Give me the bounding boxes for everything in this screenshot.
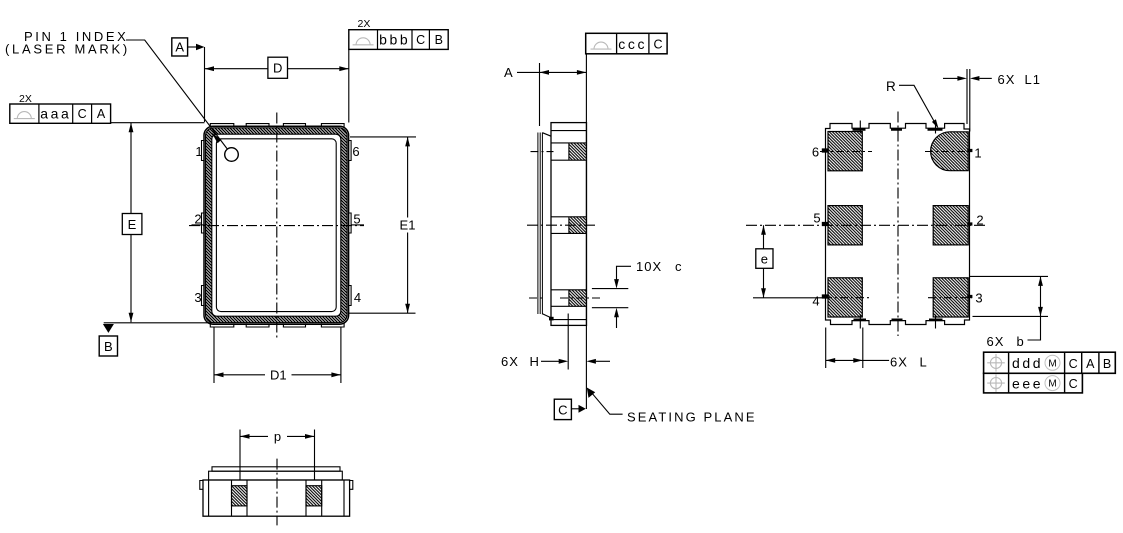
svg-text:C: C	[1069, 357, 1078, 371]
svg-text:bbb: bbb	[379, 32, 410, 48]
svg-text:6X: 6X	[998, 72, 1016, 87]
svg-text:6: 6	[812, 145, 819, 160]
svg-text:C: C	[653, 38, 662, 52]
svg-text:C: C	[558, 402, 567, 417]
svg-text:C: C	[1069, 377, 1078, 391]
svg-text:c: c	[675, 259, 682, 274]
svg-text:C: C	[416, 33, 425, 47]
svg-text:e: e	[761, 251, 768, 266]
svg-text:3: 3	[194, 290, 201, 305]
svg-text:E1: E1	[400, 218, 416, 233]
svg-text:3: 3	[975, 291, 982, 306]
svg-text:4: 4	[812, 294, 819, 309]
svg-text:6: 6	[352, 144, 359, 159]
svg-text:A: A	[97, 107, 106, 121]
svg-text:C: C	[78, 107, 87, 121]
svg-text:(LASER MARK): (LASER MARK)	[5, 42, 130, 57]
svg-text:B: B	[435, 33, 443, 47]
svg-text:ccc: ccc	[618, 36, 647, 52]
svg-text:B: B	[1103, 357, 1111, 371]
svg-text:10X: 10X	[636, 259, 662, 274]
svg-text:L1: L1	[1025, 72, 1041, 87]
svg-text:H: H	[530, 354, 539, 369]
svg-text:SEATING PLANE: SEATING PLANE	[627, 410, 757, 425]
svg-text:6X: 6X	[890, 354, 908, 369]
svg-text:6X: 6X	[987, 334, 1005, 349]
svg-text:eee: eee	[1012, 375, 1043, 391]
svg-text:4: 4	[354, 290, 361, 305]
svg-text:L: L	[920, 354, 927, 369]
svg-text:R: R	[886, 79, 896, 94]
svg-text:2X: 2X	[358, 18, 371, 30]
svg-text:2: 2	[976, 213, 983, 228]
svg-text:aaa: aaa	[40, 105, 71, 121]
svg-text:2X: 2X	[19, 93, 32, 105]
svg-text:6X: 6X	[501, 354, 519, 369]
svg-text:A: A	[175, 40, 184, 55]
svg-text:A: A	[1086, 357, 1095, 371]
svg-text:D1: D1	[270, 367, 287, 382]
svg-text:5: 5	[813, 211, 820, 226]
svg-text:b: b	[1017, 334, 1024, 349]
svg-text:E: E	[128, 217, 137, 232]
svg-text:A: A	[504, 65, 513, 80]
svg-text:D: D	[273, 61, 282, 76]
svg-text:p: p	[274, 429, 281, 444]
svg-text:B: B	[104, 339, 113, 354]
svg-text:1: 1	[195, 144, 202, 159]
svg-text:1: 1	[974, 146, 981, 161]
svg-text:ddd: ddd	[1012, 355, 1043, 371]
